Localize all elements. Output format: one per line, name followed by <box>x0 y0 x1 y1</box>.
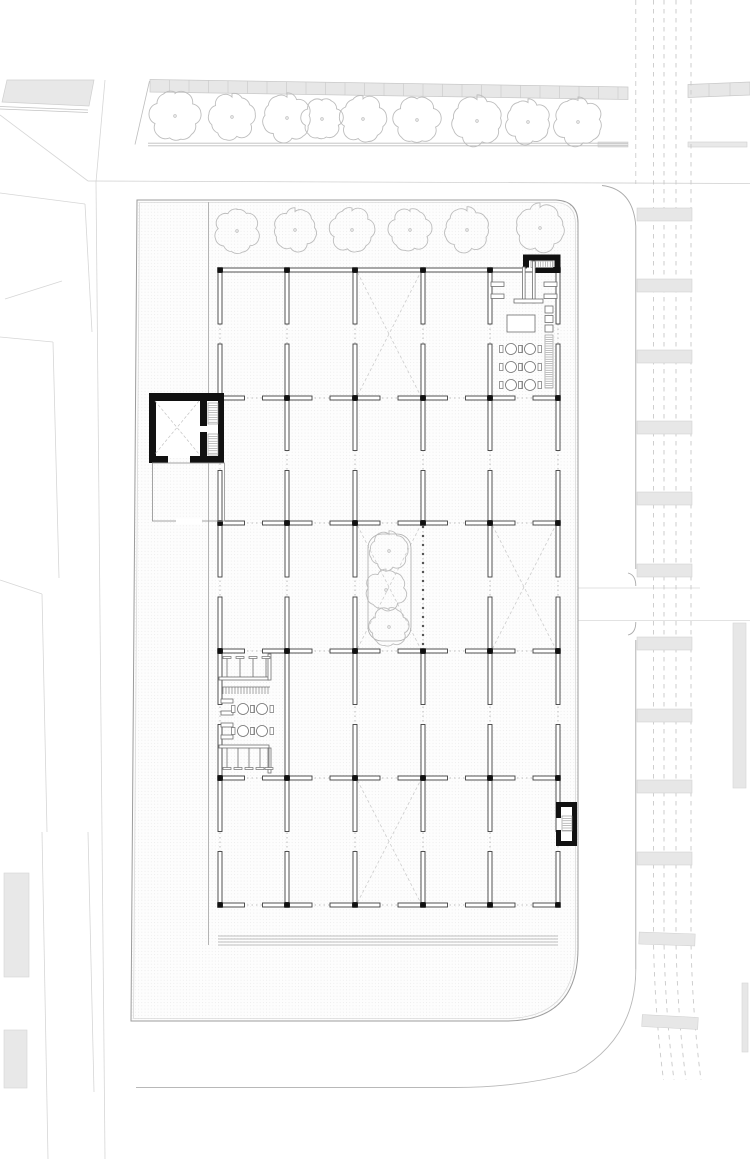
east-stair-core <box>556 802 577 846</box>
sidewalk-band <box>135 80 750 148</box>
street-trees-row <box>149 91 601 147</box>
site-plan-page <box>0 0 750 1159</box>
site-plan-svg <box>0 0 750 1159</box>
